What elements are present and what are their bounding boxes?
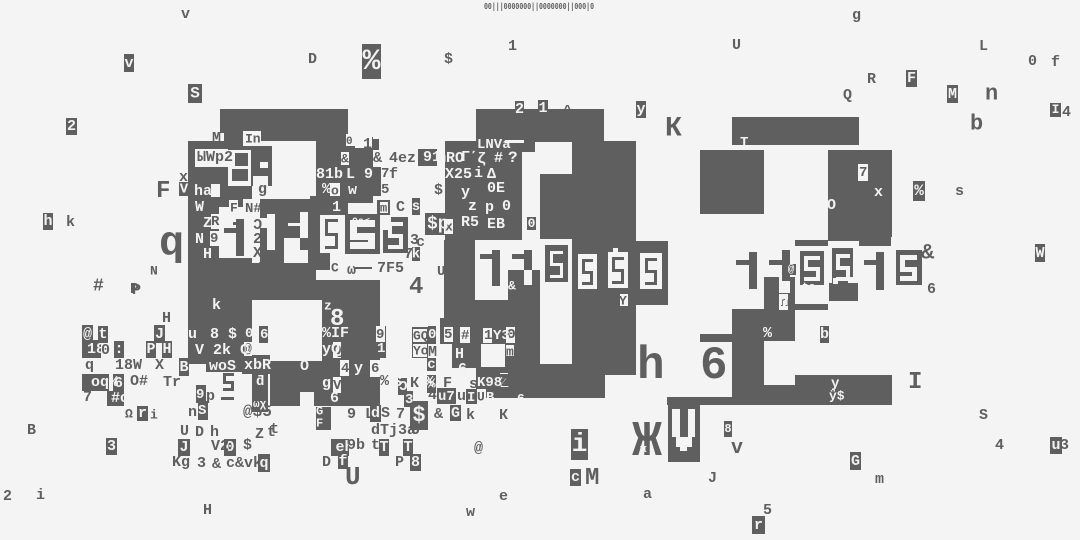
- svg-text:G: G: [851, 453, 860, 470]
- svg-text:Tr: Tr: [163, 374, 181, 391]
- svg-text:GQ: GQ: [413, 328, 429, 343]
- svg-text:L: L: [365, 406, 374, 423]
- svg-text:f: f: [1051, 54, 1060, 71]
- svg-text:I: I: [1052, 102, 1060, 117]
- svg-text:In: In: [245, 131, 261, 146]
- svg-text:w: w: [466, 504, 475, 521]
- svg-text:S: S: [190, 85, 200, 103]
- svg-text:7: 7: [859, 165, 867, 181]
- svg-text:H: H: [203, 502, 212, 519]
- svg-text:Z: Z: [203, 215, 212, 232]
- svg-text:0: 0: [428, 327, 436, 343]
- svg-text:3: 3: [197, 455, 206, 472]
- svg-text:8 $: 8 $: [210, 326, 237, 343]
- svg-text:b: b: [970, 112, 983, 137]
- svg-text:z: z: [468, 198, 477, 215]
- svg-text:6: 6: [927, 281, 936, 298]
- svg-text:%: %: [363, 45, 382, 79]
- svg-text:i: i: [474, 165, 483, 182]
- svg-text:X25: X25: [445, 166, 472, 183]
- svg-text:m: m: [380, 202, 387, 216]
- svg-text:5: 5: [763, 502, 772, 519]
- svg-text:v: v: [731, 437, 743, 460]
- svg-text:ЫWp2: ЫWp2: [197, 149, 233, 166]
- svg-text:&: &: [921, 241, 935, 266]
- svg-text:v: v: [181, 6, 190, 23]
- svg-text:К: К: [410, 375, 419, 392]
- svg-text:Q: Q: [843, 87, 852, 104]
- svg-text:o: o: [331, 183, 339, 198]
- svg-text:9: 9: [210, 231, 218, 247]
- svg-text:1: 1: [377, 341, 385, 357]
- svg-text:r: r: [754, 517, 763, 534]
- svg-text:К: К: [665, 113, 682, 144]
- svg-text:7: 7: [381, 166, 389, 182]
- svg-text:W: W: [195, 199, 204, 216]
- svg-text:0a<: 0a<: [352, 217, 370, 228]
- svg-text:&: &: [434, 406, 443, 423]
- svg-text:H: H: [203, 246, 212, 263]
- svg-text:yQ: yQ: [322, 341, 340, 358]
- svg-text:2: 2: [3, 488, 12, 505]
- svg-text:c: c: [571, 469, 580, 486]
- svg-text:V 2k C: V 2k C: [195, 342, 249, 359]
- svg-text:S: S: [979, 407, 988, 424]
- svg-text:f: f: [389, 166, 398, 183]
- svg-text:F: F: [230, 200, 238, 215]
- svg-text:p: p: [485, 199, 494, 216]
- svg-text:t: t: [371, 437, 380, 454]
- svg-text:R: R: [211, 214, 220, 230]
- svg-text:D: D: [308, 51, 317, 68]
- svg-text:V2: V2: [211, 438, 229, 455]
- svg-text:mRO: mRO: [437, 150, 464, 167]
- svg-text:u7: u7: [438, 389, 455, 405]
- svg-text:Z: Z: [501, 375, 509, 391]
- svg-text:P: P: [147, 341, 156, 358]
- svg-text:u: u: [779, 282, 786, 294]
- svg-text:U: U: [732, 37, 741, 54]
- svg-text:i: i: [36, 487, 45, 504]
- svg-text:4: 4: [409, 274, 423, 301]
- svg-text:ÿ$: ÿ$: [829, 388, 845, 403]
- svg-text:j: j: [255, 261, 264, 278]
- svg-text:P: P: [132, 282, 141, 299]
- svg-text:n: n: [985, 82, 998, 107]
- svg-text:M: M: [948, 86, 957, 103]
- svg-text:T: T: [380, 439, 389, 456]
- svg-text:@: @: [788, 264, 795, 276]
- svg-text:Kg: Kg: [172, 454, 190, 471]
- svg-text:F: F: [156, 178, 170, 205]
- svg-text:1: 1: [332, 199, 341, 216]
- svg-text:I: I: [908, 369, 922, 396]
- svg-text:e: e: [499, 488, 508, 505]
- svg-text:6: 6: [330, 390, 339, 407]
- svg-text:N: N: [150, 263, 158, 278]
- svg-text:%: %: [322, 181, 332, 198]
- svg-text:9b: 9b: [347, 437, 365, 454]
- svg-text:ωχ: ωχ: [253, 399, 267, 411]
- svg-text:B: B: [27, 422, 36, 439]
- svg-text:s: s: [955, 183, 964, 200]
- svg-text:w: w: [348, 182, 357, 199]
- svg-text:6: 6: [260, 327, 268, 343]
- svg-text:woS: woS: [209, 358, 236, 375]
- svg-text:&: &: [373, 150, 382, 167]
- svg-text:M: M: [585, 465, 599, 492]
- svg-text:M: M: [212, 130, 221, 147]
- svg-text:К: К: [499, 407, 508, 424]
- svg-text:0E: 0E: [487, 180, 505, 197]
- svg-text:8: 8: [411, 454, 420, 471]
- svg-text:y: y: [354, 360, 363, 377]
- svg-text:n: n: [779, 293, 788, 310]
- svg-text:3: 3: [405, 392, 413, 408]
- svg-text:$: $: [444, 51, 453, 68]
- svg-text:R5: R5: [461, 214, 479, 231]
- svg-text:C: C: [396, 199, 405, 216]
- svg-text:0: 0: [346, 136, 353, 148]
- svg-text:H: H: [163, 341, 172, 358]
- svg-text:5: 5: [444, 327, 452, 343]
- svg-text:ω: ω: [347, 262, 356, 279]
- svg-text:3: 3: [107, 438, 116, 455]
- svg-text:m: m: [875, 471, 884, 488]
- svg-text:i: i: [572, 429, 588, 459]
- svg-text:ha: ha: [194, 183, 212, 200]
- svg-text:n: n: [188, 404, 197, 421]
- svg-text:7: 7: [404, 246, 413, 263]
- svg-text:#: #: [494, 150, 503, 167]
- svg-text:P: P: [395, 454, 404, 471]
- svg-text:ƌ: ƌ: [256, 374, 264, 390]
- svg-text:4: 4: [1062, 104, 1071, 121]
- svg-text::: :: [115, 341, 124, 358]
- svg-text:6: 6: [517, 391, 525, 406]
- svg-text:m: m: [506, 344, 514, 359]
- svg-text:R: R: [867, 71, 876, 88]
- svg-text:B: B: [486, 390, 495, 406]
- svg-text:$: $: [434, 182, 443, 199]
- svg-text:k: k: [66, 214, 75, 231]
- svg-text:#o: #o: [111, 390, 129, 407]
- svg-text:2: 2: [515, 101, 524, 118]
- svg-text:%: %: [763, 325, 773, 342]
- svg-text:8: 8: [724, 422, 731, 436]
- svg-text:6: 6: [700, 340, 728, 392]
- svg-text:@: @: [474, 440, 483, 457]
- svg-text:4ez: 4ez: [389, 150, 416, 167]
- svg-text:Ж: Ж: [632, 414, 662, 471]
- svg-text:s: s: [412, 199, 420, 215]
- svg-text:J: J: [708, 470, 717, 487]
- svg-text:Z: Z: [255, 426, 264, 443]
- svg-text:O#: O#: [130, 373, 148, 390]
- svg-text:N#: N#: [245, 201, 262, 217]
- svg-text:S: S: [381, 405, 390, 422]
- svg-text:t: t: [270, 421, 279, 438]
- svg-text:ts: ts: [802, 282, 815, 294]
- svg-text:3: 3: [1060, 437, 1069, 454]
- svg-text:F: F: [316, 417, 323, 431]
- svg-text:0: 0: [101, 342, 110, 359]
- svg-text:L: L: [979, 38, 988, 55]
- svg-text:p: p: [206, 388, 215, 405]
- svg-text:a: a: [643, 486, 652, 503]
- svg-text:g: g: [258, 181, 267, 198]
- svg-text:6: 6: [458, 361, 467, 378]
- svg-text:1: 1: [539, 100, 548, 117]
- svg-text:7: 7: [83, 389, 92, 406]
- svg-text:c: c: [416, 234, 425, 251]
- svg-text:W: W: [1036, 245, 1045, 262]
- svg-text:Yo: Yo: [413, 343, 429, 358]
- svg-text:q: q: [159, 220, 184, 268]
- svg-text:U: U: [411, 422, 420, 439]
- svg-text:0: 0: [245, 326, 253, 342]
- svg-text:G: G: [451, 405, 460, 422]
- svg-text:v: v: [125, 55, 134, 72]
- svg-text:5: 5: [381, 182, 389, 198]
- svg-text:F: F: [907, 70, 916, 87]
- svg-text:x: x: [179, 169, 188, 186]
- svg-text:h: h: [44, 213, 53, 230]
- svg-text:%IF: %IF: [322, 325, 349, 342]
- svg-text:EB: EB: [487, 216, 505, 233]
- svg-text:6: 6: [371, 361, 379, 377]
- svg-text:?: ?: [508, 149, 518, 167]
- svg-text:f: f: [339, 453, 348, 470]
- svg-text:T: T: [740, 135, 748, 151]
- svg-text:9: 9: [347, 406, 356, 423]
- svg-text:4: 4: [341, 361, 349, 377]
- svg-text:$p: $p: [427, 214, 449, 234]
- svg-text:y: y: [637, 101, 646, 118]
- svg-text:u: u: [188, 326, 197, 343]
- svg-text:D: D: [195, 424, 204, 441]
- svg-text:00|||0000000||0000000||000|0: 00|||0000000||0000000||000|0: [484, 2, 594, 12]
- svg-text:x: x: [874, 184, 883, 201]
- svg-text:^: ^: [563, 103, 572, 120]
- svg-text:L 9: L 9: [346, 166, 373, 183]
- svg-text:#: #: [93, 276, 104, 296]
- svg-text:M: M: [428, 344, 437, 361]
- svg-text:2: 2: [67, 118, 76, 135]
- svg-text:18W: 18W: [115, 357, 142, 374]
- svg-text:D: D: [322, 454, 331, 471]
- svg-text:c&vk: c&vk: [226, 455, 262, 472]
- svg-text:&: &: [212, 456, 221, 473]
- svg-text:J: J: [155, 326, 164, 343]
- svg-text:U: U: [477, 389, 485, 404]
- svg-text:9: 9: [196, 387, 204, 403]
- svg-text:K98: K98: [477, 375, 502, 391]
- svg-text:C: C: [331, 260, 339, 275]
- svg-text:q: q: [85, 357, 94, 374]
- svg-text:u: u: [457, 388, 466, 405]
- svg-text:Ω: Ω: [125, 406, 133, 421]
- svg-text:%: %: [914, 182, 924, 200]
- svg-text:0: 0: [502, 198, 511, 215]
- svg-text:g: g: [852, 7, 861, 24]
- svg-text:c: c: [647, 360, 652, 370]
- svg-text:E: E: [371, 389, 380, 406]
- svg-text:O: O: [827, 197, 836, 214]
- svg-text:I: I: [467, 390, 475, 406]
- svg-text:k: k: [212, 297, 221, 314]
- svg-text:$: $: [243, 437, 252, 454]
- svg-text:1: 1: [484, 328, 492, 344]
- svg-text:0: 0: [528, 216, 536, 231]
- svg-text:U: U: [437, 264, 445, 280]
- svg-text:#: #: [461, 328, 469, 344]
- svg-text:i: i: [150, 407, 158, 422]
- svg-text:%: %: [380, 373, 390, 390]
- svg-text:xbR: xbR: [244, 357, 271, 374]
- svg-text:1: 1: [363, 136, 372, 153]
- svg-text:&: &: [341, 151, 349, 166]
- svg-text:k: k: [466, 407, 475, 424]
- svg-text:4: 4: [995, 437, 1004, 454]
- svg-text:U: U: [180, 423, 189, 440]
- svg-text:S: S: [198, 403, 206, 419]
- svg-text:%: %: [425, 374, 435, 391]
- svg-text:b: b: [820, 326, 829, 343]
- svg-text:r: r: [138, 405, 147, 422]
- svg-text:H: H: [162, 310, 171, 327]
- svg-text:7F5: 7F5: [377, 260, 404, 277]
- svg-text:X: X: [253, 245, 262, 262]
- svg-text:Y: Y: [619, 293, 627, 308]
- svg-text:1: 1: [508, 38, 517, 55]
- svg-text:0: 0: [1028, 53, 1037, 70]
- svg-text:&: &: [508, 278, 516, 293]
- svg-text:X: X: [155, 357, 164, 374]
- svg-text:Y3: Y3: [493, 328, 510, 344]
- svg-text:O: O: [300, 358, 309, 375]
- svg-text:π: π: [640, 444, 647, 456]
- svg-text:7: 7: [396, 406, 405, 423]
